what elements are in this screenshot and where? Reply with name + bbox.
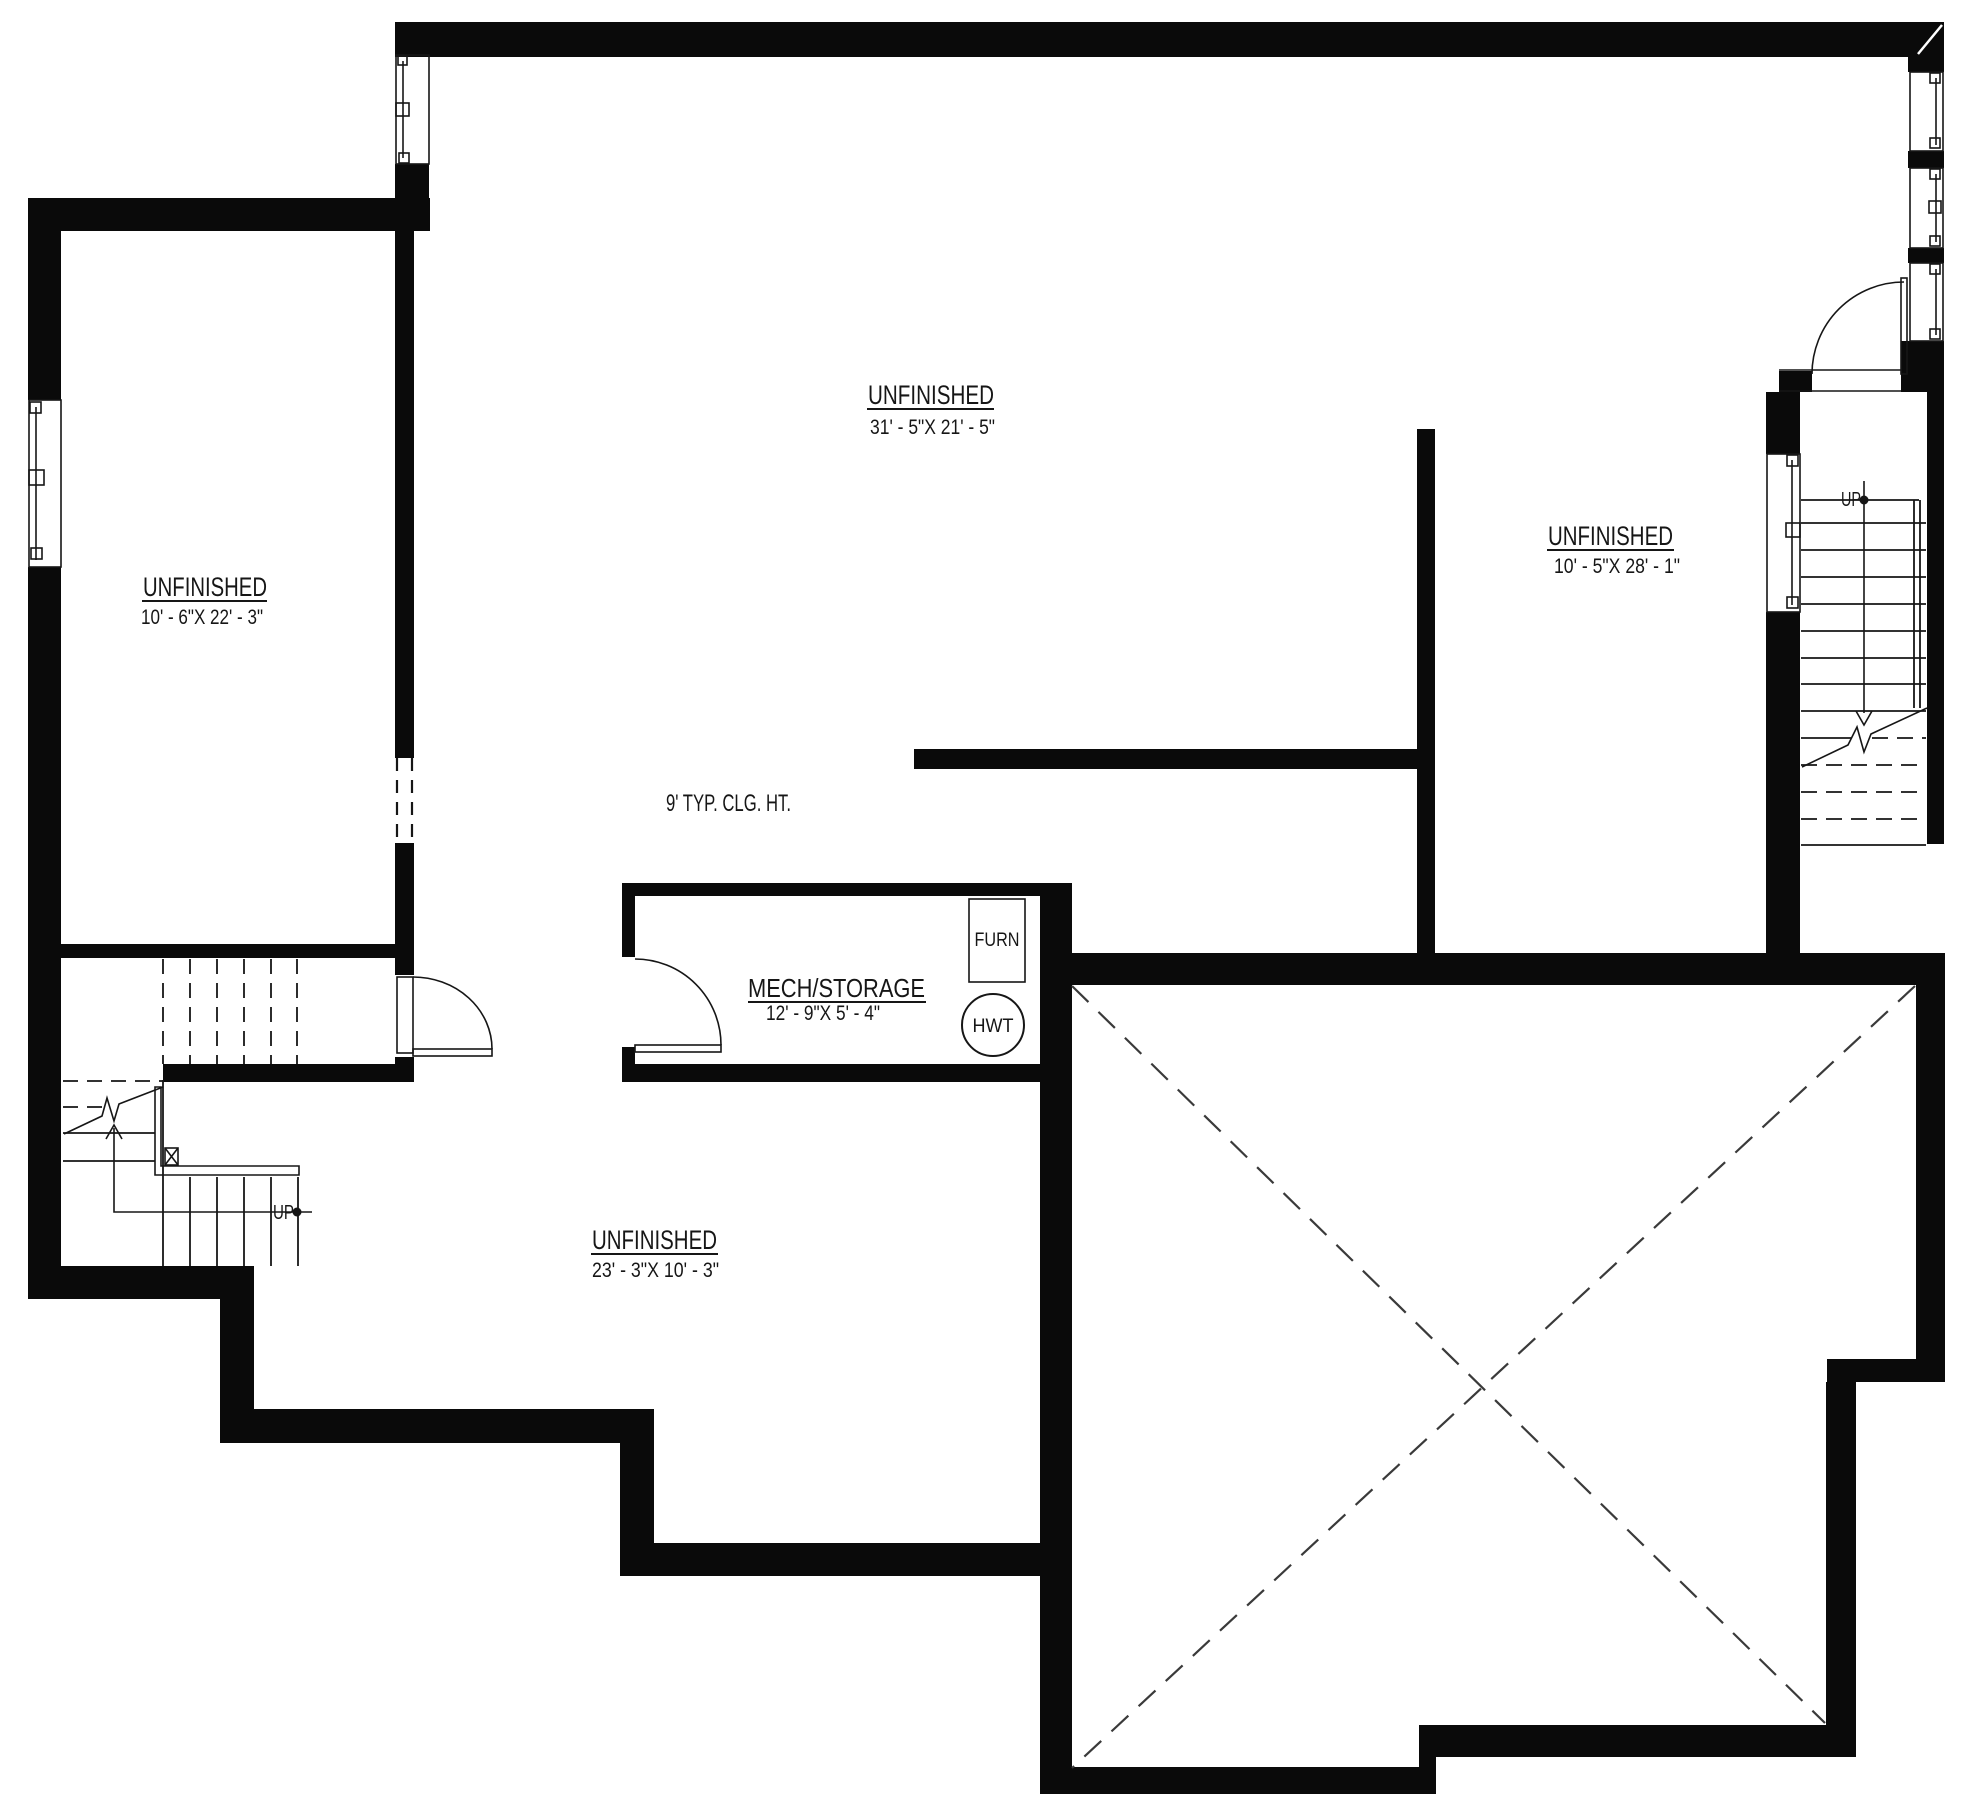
svg-text:UP: UP xyxy=(1841,489,1861,511)
svg-text:UNFINISHED: UNFINISHED xyxy=(592,1225,717,1255)
svg-text:MECH/STORAGE: MECH/STORAGE xyxy=(748,973,925,1003)
svg-text:12' - 9"X 5' - 4": 12' - 9"X 5' - 4" xyxy=(766,1002,880,1025)
svg-text:FURN: FURN xyxy=(975,930,1020,951)
svg-text:9' TYP. CLG. HT.: 9' TYP. CLG. HT. xyxy=(666,790,791,817)
svg-text:23' - 3"X 10' - 3": 23' - 3"X 10' - 3" xyxy=(592,1259,719,1282)
svg-text:UNFINISHED: UNFINISHED xyxy=(1548,521,1673,551)
svg-text:10' - 6"X 22' - 3": 10' - 6"X 22' - 3" xyxy=(141,606,263,629)
svg-text:UNFINISHED: UNFINISHED xyxy=(143,572,267,602)
svg-text:10' - 5"X 28' - 1": 10' - 5"X 28' - 1" xyxy=(1554,555,1680,578)
svg-text:31' - 5"X 21' - 5": 31' - 5"X 21' - 5" xyxy=(870,416,995,439)
svg-text:UNFINISHED: UNFINISHED xyxy=(868,380,994,410)
svg-text:UP: UP xyxy=(273,1202,294,1224)
svg-text:HWT: HWT xyxy=(973,1016,1014,1037)
